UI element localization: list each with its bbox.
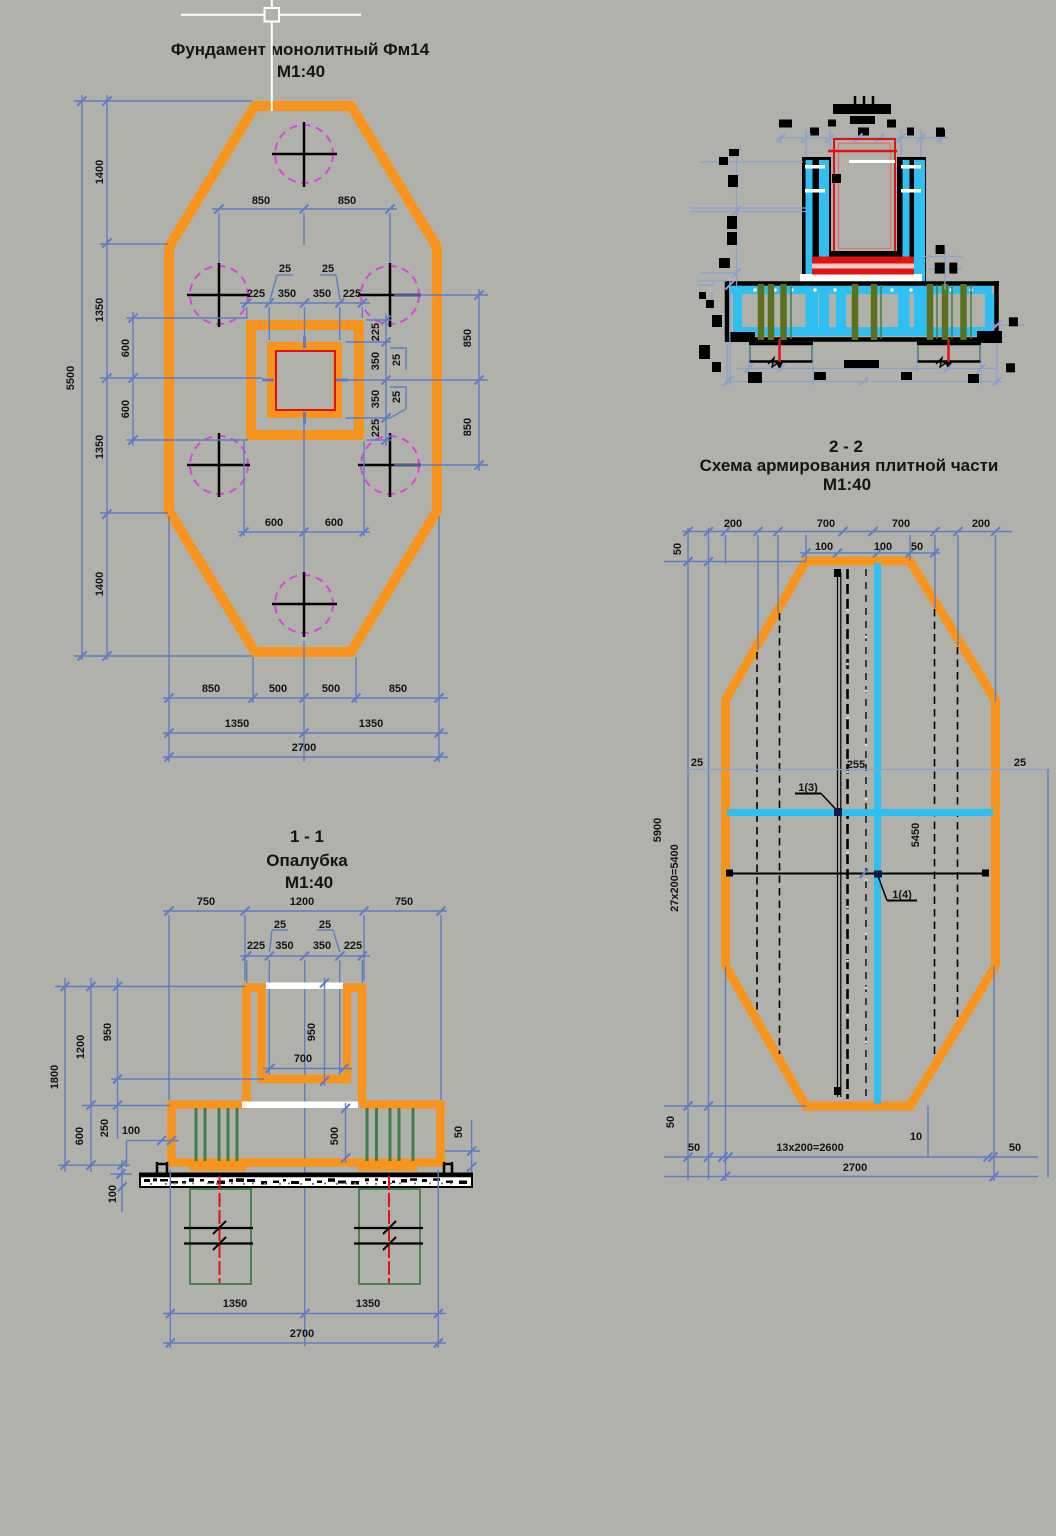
svg-text:700: 700	[294, 1053, 312, 1065]
svg-text:1350: 1350	[225, 718, 249, 730]
svg-text:500: 500	[329, 1127, 341, 1145]
svg-text:750: 750	[197, 896, 215, 908]
svg-text:2 - 2: 2 - 2	[829, 437, 863, 456]
svg-text:600: 600	[74, 1127, 86, 1145]
svg-text:600: 600	[120, 400, 132, 418]
svg-text:250: 250	[99, 1119, 111, 1137]
svg-text:500: 500	[322, 683, 340, 695]
svg-text:1350: 1350	[356, 1298, 380, 1310]
svg-text:350: 350	[278, 288, 296, 300]
svg-text:1200: 1200	[75, 1035, 87, 1059]
svg-text:100: 100	[874, 541, 892, 553]
svg-text:Схема армирования плитной част: Схема армирования плитной части	[700, 456, 999, 475]
svg-text:700: 700	[817, 518, 835, 530]
svg-text:25: 25	[322, 263, 334, 275]
svg-text:350: 350	[370, 390, 382, 408]
svg-text:850: 850	[462, 329, 474, 347]
svg-text:25: 25	[274, 919, 286, 931]
svg-text:25: 25	[691, 757, 703, 769]
svg-text:50: 50	[672, 543, 684, 555]
svg-text:2700: 2700	[290, 1328, 314, 1340]
svg-text:25: 25	[391, 354, 403, 366]
svg-text:100: 100	[107, 1185, 119, 1203]
svg-text:10: 10	[910, 1131, 922, 1143]
svg-text:Опалубка: Опалубка	[266, 851, 348, 870]
svg-text:1 - 1: 1 - 1	[290, 827, 324, 846]
svg-text:5450: 5450	[910, 823, 922, 847]
svg-text:225: 225	[247, 288, 265, 300]
svg-text:225: 225	[247, 940, 265, 952]
svg-text:100: 100	[122, 1125, 140, 1137]
svg-text:25: 25	[1014, 757, 1026, 769]
svg-text:1800: 1800	[49, 1065, 61, 1089]
svg-text:950: 950	[102, 1023, 114, 1041]
svg-text:2700: 2700	[843, 1162, 867, 1174]
svg-text:500: 500	[269, 683, 287, 695]
svg-text:50: 50	[1009, 1142, 1021, 1154]
svg-text:850: 850	[389, 683, 407, 695]
svg-text:50: 50	[688, 1142, 700, 1154]
svg-text:1350: 1350	[94, 298, 106, 322]
svg-text:850: 850	[252, 195, 270, 207]
svg-text:13x200=2600: 13x200=2600	[776, 1142, 844, 1154]
svg-text:М1:40: М1:40	[277, 62, 325, 81]
svg-text:50: 50	[665, 1116, 677, 1128]
svg-text:100: 100	[815, 541, 833, 553]
svg-text:М1:40: М1:40	[285, 873, 333, 892]
svg-text:225: 225	[370, 323, 382, 341]
svg-text:1(3): 1(3)	[798, 782, 818, 794]
svg-text:1350: 1350	[359, 718, 383, 730]
svg-text:50: 50	[911, 541, 923, 553]
svg-text:750: 750	[395, 896, 413, 908]
svg-text:50: 50	[453, 1126, 465, 1138]
svg-text:850: 850	[462, 418, 474, 436]
svg-text:600: 600	[325, 517, 343, 529]
svg-text:225: 225	[370, 419, 382, 437]
svg-text:25: 25	[319, 919, 331, 931]
svg-text:1400: 1400	[94, 572, 106, 596]
svg-text:700: 700	[892, 518, 910, 530]
svg-text:850: 850	[338, 195, 356, 207]
svg-text:М1:40: М1:40	[823, 475, 871, 494]
svg-text:600: 600	[120, 339, 132, 357]
svg-text:850: 850	[202, 683, 220, 695]
svg-text:225: 225	[343, 288, 361, 300]
svg-text:25: 25	[279, 263, 291, 275]
svg-text:200: 200	[972, 518, 990, 530]
svg-text:1350: 1350	[223, 1298, 247, 1310]
svg-text:1400: 1400	[94, 160, 106, 184]
svg-text:350: 350	[370, 352, 382, 370]
svg-text:5500: 5500	[65, 366, 77, 390]
svg-text:Фундамент монолитный Фм14: Фундамент монолитный Фм14	[171, 40, 430, 59]
svg-text:1(4): 1(4)	[892, 889, 912, 901]
svg-text:350: 350	[275, 940, 293, 952]
svg-text:1200: 1200	[290, 896, 314, 908]
svg-text:25: 25	[391, 391, 403, 403]
svg-text:350: 350	[313, 288, 331, 300]
svg-text:225: 225	[344, 940, 362, 952]
svg-text:200: 200	[724, 518, 742, 530]
svg-text:350: 350	[313, 940, 331, 952]
svg-text:5900: 5900	[652, 818, 664, 842]
svg-text:1350: 1350	[94, 435, 106, 459]
svg-text:950: 950	[306, 1023, 318, 1041]
svg-text:600: 600	[265, 517, 283, 529]
svg-text:27x200=5400: 27x200=5400	[669, 844, 681, 912]
